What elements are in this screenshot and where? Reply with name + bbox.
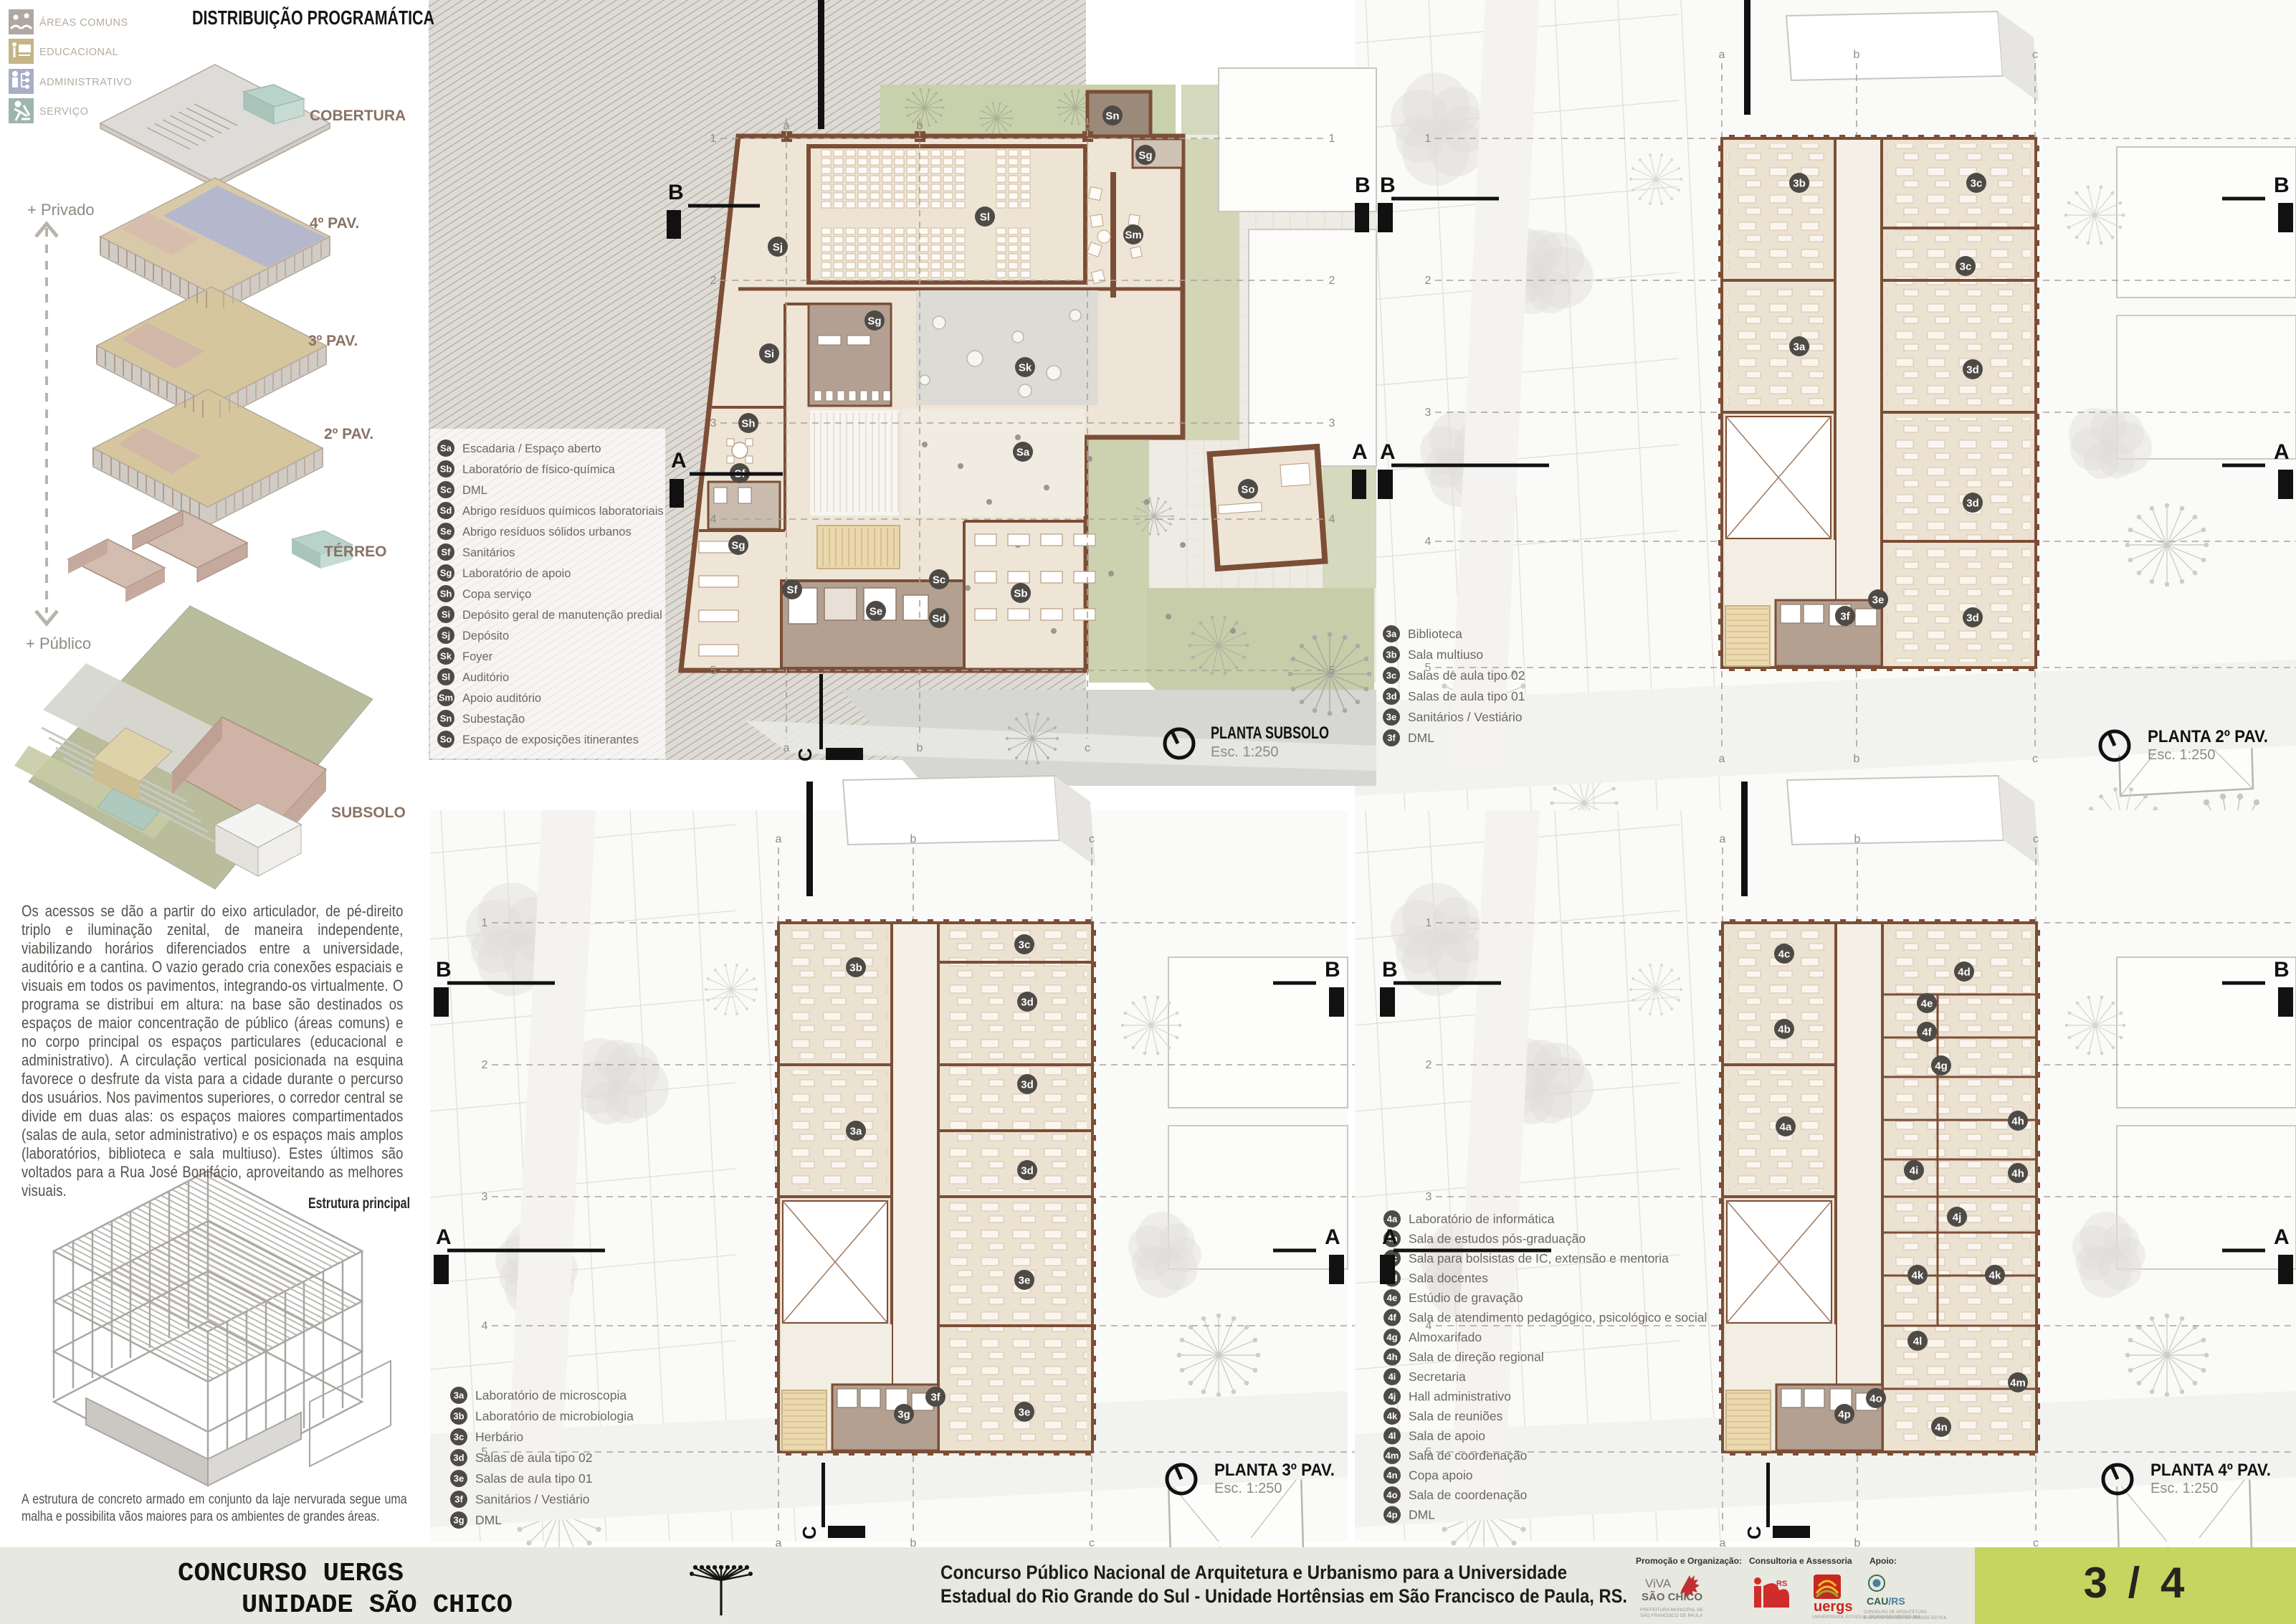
svg-text:3d: 3d [1021, 1164, 1034, 1177]
svg-text:Sanitários / Vestiário: Sanitários / Vestiário [1408, 710, 1523, 724]
svg-text:Sala para bolsistas de IC, ext: Sala para bolsistas de IC, extensão e me… [1409, 1251, 1669, 1266]
svg-text:3: 3 [482, 1191, 488, 1203]
svg-text:A: A [671, 449, 687, 473]
svg-text:Concurso Público Nacional de A: Concurso Público Nacional de Arquitetura… [940, 1562, 1567, 1583]
svg-text:3g: 3g [453, 1515, 464, 1526]
svg-text:RS: RS [1776, 1580, 1787, 1588]
svg-text:ÁREAS COMUNS: ÁREAS COMUNS [39, 16, 128, 29]
svg-text:4f: 4f [1922, 1026, 1932, 1038]
svg-text:3º PAV.: 3º PAV. [308, 333, 358, 349]
svg-text:3: 3 [1426, 1191, 1432, 1203]
svg-text:3c: 3c [1971, 177, 1983, 189]
svg-text:3b: 3b [1386, 650, 1396, 660]
svg-text:C: C [794, 748, 816, 761]
svg-text:4n: 4n [1386, 1470, 1397, 1481]
svg-text:1: 1 [1425, 133, 1432, 145]
svg-text:Si: Si [764, 348, 774, 360]
svg-text:B: B [1325, 958, 1340, 982]
svg-text:3d: 3d [1966, 364, 1979, 376]
svg-text:4k: 4k [1387, 1411, 1398, 1422]
svg-text:C: C [799, 1526, 820, 1539]
svg-text:Foyer: Foyer [462, 650, 493, 663]
svg-text:a: a [1719, 753, 1725, 765]
svg-text:+ Privado: + Privado [27, 201, 95, 219]
svg-text:3f: 3f [1387, 733, 1396, 744]
svg-text:Laboratório de microscopia: Laboratório de microscopia [475, 1388, 627, 1402]
svg-text:2: 2 [482, 1059, 488, 1071]
svg-text:b: b [1854, 833, 1861, 845]
svg-text:Sala de coordenação: Sala de coordenação [1409, 1448, 1527, 1463]
svg-text:4l: 4l [1388, 1430, 1396, 1441]
svg-text:Sg: Sg [440, 568, 452, 579]
svg-text:4d: 4d [1958, 966, 1971, 978]
svg-text:CONCURSO UERGS: CONCURSO UERGS [178, 1559, 404, 1588]
svg-text:Copa apoio: Copa apoio [1409, 1468, 1473, 1483]
svg-text:4: 4 [710, 513, 717, 526]
svg-text:Depósito: Depósito [462, 630, 509, 642]
svg-text:4m: 4m [2010, 1377, 2026, 1389]
svg-text:Sd: Sd [932, 612, 945, 625]
svg-text:1: 1 [482, 917, 488, 929]
svg-text:DML: DML [1408, 731, 1434, 745]
svg-text:3b: 3b [849, 961, 862, 974]
svg-text:2: 2 [1426, 1059, 1432, 1071]
svg-text:Sj: Sj [773, 241, 783, 253]
svg-text:Esc. 1:250: Esc. 1:250 [2148, 747, 2216, 763]
svg-text:Sj: Sj [442, 630, 450, 641]
svg-text:Secretaria: Secretaria [1409, 1369, 1466, 1384]
svg-text:A: A [1380, 440, 1396, 464]
svg-text:3a: 3a [1386, 629, 1397, 640]
svg-text:Escadaria / Espaço aberto: Escadaria / Espaço aberto [462, 442, 601, 455]
svg-text:Hall administrativo: Hall administrativo [1409, 1390, 1511, 1404]
svg-text:b: b [910, 833, 917, 845]
svg-text:DML: DML [475, 1513, 502, 1527]
svg-text:4a: 4a [1387, 1214, 1398, 1225]
svg-text:Sl: Sl [442, 672, 450, 683]
svg-text:4f: 4f [1388, 1312, 1396, 1323]
svg-text:Sa: Sa [440, 443, 452, 454]
svg-text:Sg: Sg [867, 315, 881, 327]
svg-text:3a: 3a [1794, 341, 1806, 353]
svg-text:COBERTURA: COBERTURA [310, 108, 406, 124]
svg-text:Almoxarifado: Almoxarifado [1409, 1330, 1482, 1344]
svg-text:Sa: Sa [1016, 446, 1030, 458]
svg-text:Sm: Sm [439, 693, 453, 703]
svg-text:4: 4 [1329, 513, 1335, 526]
svg-text:Sala de apoio: Sala de apoio [1409, 1429, 1485, 1443]
svg-text:Se: Se [870, 605, 882, 617]
svg-text:CONSELHO DE ARQUITETURA: CONSELHO DE ARQUITETURA [1864, 1610, 1927, 1615]
svg-text:Sc: Sc [933, 574, 945, 586]
svg-text:SÃO CHICO: SÃO CHICO [1642, 1590, 1702, 1603]
svg-text:A: A [1325, 1225, 1340, 1249]
svg-text:Sf: Sf [787, 584, 799, 596]
svg-text:4º PAV.: 4º PAV. [310, 215, 359, 232]
svg-text:ViVA: ViVA [1645, 1577, 1672, 1590]
svg-text:3d: 3d [1021, 1078, 1034, 1091]
svg-text:Sb: Sb [440, 464, 452, 475]
svg-text:Sala de estudos pós-graduação: Sala de estudos pós-graduação [1409, 1232, 1586, 1246]
svg-text:Sh: Sh [440, 589, 452, 599]
svg-text:1: 1 [710, 133, 717, 145]
svg-text:3: 3 [710, 417, 717, 429]
svg-text:Sn: Sn [1105, 110, 1119, 122]
svg-text:2º PAV.: 2º PAV. [324, 426, 373, 442]
svg-text:uergs: uergs [1814, 1599, 1852, 1615]
svg-text:c: c [1085, 742, 1090, 754]
svg-text:3f: 3f [1840, 610, 1850, 622]
svg-text:Sm: Sm [1125, 229, 1141, 241]
svg-text:3f: 3f [454, 1494, 463, 1505]
svg-text:So: So [1241, 483, 1254, 495]
svg-text:Sala de reuniões: Sala de reuniões [1409, 1409, 1503, 1423]
svg-text:Abrigo resíduos químicos labor: Abrigo resíduos químicos laboratoriais [462, 505, 664, 518]
svg-text:Sk: Sk [1019, 361, 1032, 374]
svg-text:B: B [668, 181, 684, 204]
svg-text:B: B [436, 958, 452, 982]
svg-text:B: B [1380, 174, 1396, 197]
svg-text:c: c [1085, 120, 1090, 132]
svg-text:3f: 3f [930, 1391, 940, 1403]
svg-text:c: c [1089, 833, 1095, 845]
svg-text:4k: 4k [1989, 1269, 2001, 1281]
svg-text:3d: 3d [1966, 497, 1979, 509]
svg-text:b: b [1854, 753, 1860, 765]
svg-text:Sd: Sd [440, 505, 452, 516]
svg-text:4: 4 [1425, 536, 1432, 548]
svg-text:4c: 4c [1778, 948, 1791, 960]
svg-text:3e: 3e [1019, 1406, 1031, 1418]
svg-text:4a: 4a [1780, 1121, 1792, 1133]
svg-text:c: c [2033, 833, 2039, 845]
svg-text:SUBSOLO: SUBSOLO [331, 804, 406, 821]
svg-text:A: A [2274, 440, 2290, 464]
svg-text:Herbário: Herbário [475, 1430, 523, 1444]
svg-text:Estúdio de gravação: Estúdio de gravação [1409, 1291, 1523, 1305]
svg-text:Espaço de exposições itinerant: Espaço de exposições itinerantes [462, 733, 639, 746]
svg-text:4h: 4h [2011, 1115, 2024, 1127]
svg-text:3a: 3a [850, 1125, 862, 1137]
svg-text:B: B [2274, 174, 2290, 197]
svg-text:Salas de aula tipo 01: Salas de aula tipo 01 [1408, 689, 1525, 703]
svg-text:Sg: Sg [731, 539, 745, 551]
svg-text:3: 3 [1329, 417, 1335, 429]
svg-text:SERVIÇO: SERVIÇO [39, 106, 89, 118]
svg-text:UNIDADE SÃO CHICO: UNIDADE SÃO CHICO [242, 1590, 513, 1620]
svg-text:5: 5 [1329, 665, 1335, 677]
svg-text:Sala de atendimento pedagógico: Sala de atendimento pedagógico, psicológ… [1409, 1311, 1707, 1325]
svg-text:Sf: Sf [442, 547, 452, 558]
svg-text:A: A [1382, 1225, 1398, 1249]
svg-text:Biblioteca: Biblioteca [1408, 627, 1462, 641]
svg-text:Esc. 1:250: Esc. 1:250 [1214, 1481, 1282, 1496]
svg-text:4b: 4b [1778, 1023, 1791, 1035]
svg-text:a: a [783, 120, 790, 132]
svg-text:4i: 4i [1910, 1164, 1919, 1177]
svg-text:Esc. 1:250: Esc. 1:250 [1211, 744, 1279, 760]
svg-text:a: a [783, 742, 790, 754]
svg-text:a: a [1719, 49, 1725, 61]
svg-text:3e: 3e [1019, 1274, 1031, 1286]
svg-text:Depósito geral de manutenção p: Depósito geral de manutenção predial [462, 609, 662, 622]
svg-text:4j: 4j [1388, 1391, 1396, 1402]
svg-text:Sanitários: Sanitários [462, 546, 515, 559]
svg-text:Laboratório de informática: Laboratório de informática [1409, 1212, 1555, 1226]
svg-text:DISTRIBUIÇÃO PROGRAMÁTICA: DISTRIBUIÇÃO PROGRAMÁTICA [192, 6, 434, 29]
svg-text:3a: 3a [454, 1390, 465, 1401]
svg-text:c: c [2032, 753, 2038, 765]
svg-text:Sala de coordenação: Sala de coordenação [1409, 1488, 1527, 1502]
svg-text:Laboratório de apoio: Laboratório de apoio [462, 567, 571, 580]
svg-text:4o: 4o [1386, 1490, 1397, 1501]
svg-text:b: b [1854, 49, 1860, 61]
svg-text:3g: 3g [897, 1408, 910, 1420]
svg-text:4l: 4l [1913, 1335, 1923, 1347]
svg-text:4k: 4k [1912, 1269, 1924, 1281]
svg-text:Consultoria e Assessoria: Consultoria e Assessoria [1749, 1556, 1852, 1566]
svg-text:1: 1 [1426, 917, 1432, 929]
svg-text:Estadual do Rio Grande do Sul: Estadual do Rio Grande do Sul - Unidade … [940, 1585, 1627, 1607]
svg-text:Salas de aula tipo 01: Salas de aula tipo 01 [475, 1471, 592, 1486]
svg-text:3d: 3d [1966, 612, 1979, 624]
svg-text:Sala de direção regional: Sala de direção regional [1409, 1350, 1544, 1364]
svg-text:3e: 3e [1386, 712, 1396, 723]
svg-text:Sala multiuso: Sala multiuso [1408, 647, 1483, 662]
svg-text:3 / 4: 3 / 4 [2084, 1559, 2189, 1607]
svg-text:C: C [1743, 1526, 1765, 1539]
svg-text:3: 3 [1425, 407, 1432, 419]
svg-text:PREFEITURA MUNICIPAL DE: PREFEITURA MUNICIPAL DE [1640, 1608, 1704, 1613]
svg-text:Esc. 1:250: Esc. 1:250 [2150, 1481, 2219, 1496]
svg-text:4m: 4m [1386, 1450, 1399, 1461]
svg-text:E URBANISMO DO RIO GRANDE DO S: E URBANISMO DO RIO GRANDE DO SUL [1864, 1616, 1948, 1620]
svg-text:Subestação: Subestação [462, 713, 525, 726]
svg-text:Sc: Sc [440, 485, 452, 495]
svg-text:Sb: Sb [1014, 587, 1027, 599]
svg-text:4g: 4g [1386, 1332, 1397, 1343]
svg-text:Sanitários / Vestiário: Sanitários / Vestiário [475, 1492, 590, 1506]
svg-text:4j: 4j [1953, 1211, 1962, 1223]
svg-text:PLANTA 2º PAV.: PLANTA 2º PAV. [2148, 727, 2268, 746]
svg-text:Copa serviço: Copa serviço [462, 588, 531, 601]
svg-text:4e: 4e [1387, 1293, 1397, 1304]
svg-text:2: 2 [1425, 275, 1432, 287]
svg-text:4h: 4h [2011, 1167, 2024, 1179]
svg-text:b: b [917, 120, 923, 132]
svg-text:PLANTA 3º PAV.: PLANTA 3º PAV. [1214, 1461, 1335, 1480]
svg-text:A: A [1352, 440, 1368, 464]
svg-text:b: b [917, 742, 923, 754]
svg-text:Laboratório de físico-química: Laboratório de físico-química [462, 463, 616, 476]
svg-text:Sn: Sn [440, 713, 452, 724]
svg-text:Apoio:: Apoio: [1869, 1556, 1897, 1566]
svg-text:4o: 4o [1869, 1392, 1882, 1405]
svg-text:3d: 3d [453, 1453, 464, 1463]
svg-text:2: 2 [1329, 275, 1335, 287]
svg-text:Salas de aula tipo 02: Salas de aula tipo 02 [1408, 668, 1525, 683]
svg-text:B: B [1382, 958, 1398, 982]
svg-text:4: 4 [482, 1320, 488, 1332]
svg-text:4g: 4g [1935, 1060, 1948, 1072]
svg-text:PLANTA SUBSOLO: PLANTA SUBSOLO [1211, 723, 1329, 743]
svg-text:a: a [1720, 833, 1726, 845]
svg-text:SÃO FRANCISCO DE PAULA: SÃO FRANCISCO DE PAULA [1640, 1612, 1703, 1618]
svg-text:So: So [440, 734, 452, 745]
svg-text:B: B [2274, 958, 2290, 982]
svg-text:Abrigo resíduos sólidos urbano: Abrigo resíduos sólidos urbanos [462, 526, 632, 538]
svg-text:EDUCACIONAL: EDUCACIONAL [39, 47, 118, 58]
svg-text:A: A [2274, 1225, 2290, 1249]
svg-text:Sala docentes: Sala docentes [1409, 1271, 1488, 1286]
svg-text:4p: 4p [1386, 1509, 1397, 1520]
svg-text:Laboratório de microbiologia: Laboratório de microbiologia [475, 1409, 634, 1423]
svg-text:4p: 4p [1838, 1408, 1851, 1420]
svg-text:3c: 3c [1960, 260, 1972, 272]
svg-text:Sl: Sl [980, 211, 990, 223]
svg-text:DML: DML [462, 484, 487, 497]
svg-text:3d: 3d [1021, 996, 1034, 1008]
svg-text:2: 2 [710, 275, 717, 287]
svg-text:3c: 3c [454, 1432, 464, 1443]
svg-text:ADMINISTRATIVO: ADMINISTRATIVO [39, 77, 132, 88]
svg-text:CAU/RS: CAU/RS [1867, 1595, 1905, 1607]
svg-text:Sg: Sg [1138, 149, 1152, 161]
svg-text:Se: Se [440, 526, 452, 537]
svg-text:3c: 3c [1386, 670, 1396, 681]
svg-text:5: 5 [710, 665, 717, 677]
svg-text:a: a [776, 833, 782, 845]
svg-text:TÉRREO: TÉRREO [324, 543, 387, 560]
svg-text:+ Público: + Público [26, 635, 91, 652]
svg-text:4h: 4h [1386, 1352, 1397, 1362]
svg-text:Salas de aula tipo 02: Salas de aula tipo 02 [475, 1450, 592, 1465]
svg-text:Apoio auditório: Apoio auditório [462, 692, 541, 705]
svg-text:Sk: Sk [440, 651, 452, 662]
svg-text:3b: 3b [453, 1411, 464, 1422]
svg-text:4e: 4e [1921, 997, 1933, 1010]
svg-text:4i: 4i [1388, 1372, 1396, 1382]
svg-text:3e: 3e [454, 1473, 464, 1484]
svg-text:B: B [1355, 174, 1371, 197]
svg-text:4n: 4n [1935, 1421, 1948, 1433]
svg-text:DML: DML [1409, 1508, 1435, 1522]
svg-text:c: c [2032, 49, 2038, 61]
svg-text:PLANTA 4º PAV.: PLANTA 4º PAV. [2150, 1461, 2271, 1480]
svg-text:Auditório: Auditório [462, 671, 509, 684]
svg-text:A: A [436, 1225, 452, 1249]
svg-text:3e: 3e [1872, 594, 1885, 606]
svg-text:Sh: Sh [741, 417, 755, 429]
svg-text:3d: 3d [1386, 691, 1396, 702]
svg-text:Promoção e Organização:: Promoção e Organização: [1636, 1556, 1742, 1566]
svg-text:1: 1 [1329, 133, 1335, 145]
svg-text:3c: 3c [1019, 939, 1031, 951]
svg-text:Si: Si [442, 609, 450, 620]
svg-text:3b: 3b [1793, 177, 1806, 189]
